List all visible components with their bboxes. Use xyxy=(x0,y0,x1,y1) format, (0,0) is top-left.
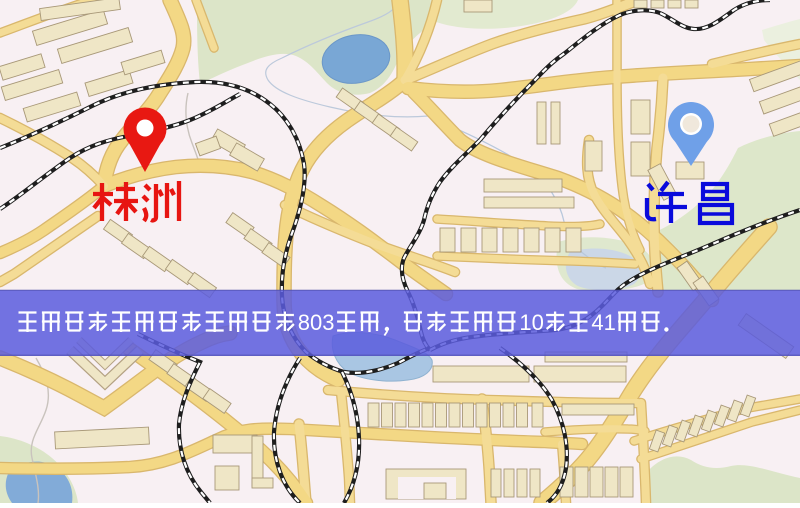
svg-text:41: 41 xyxy=(591,310,615,335)
svg-text:10: 10 xyxy=(519,310,543,335)
svg-text:803: 803 xyxy=(298,310,335,335)
